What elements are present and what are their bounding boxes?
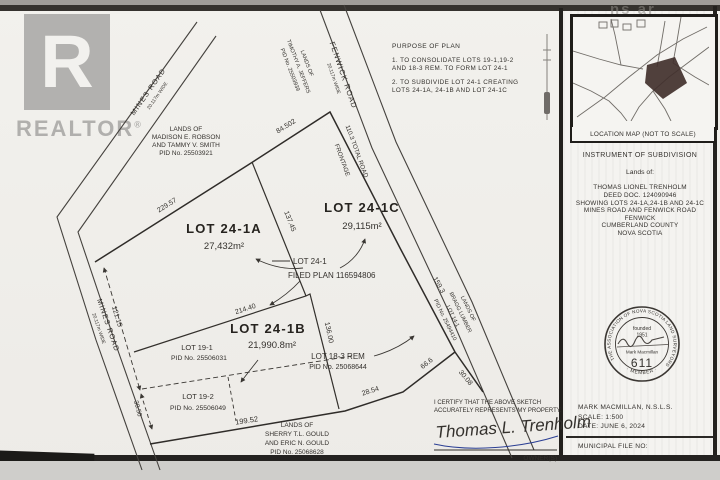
lands-jeffers-label: LANDS OF TIMOTHY A. JEFFERS PID No. 2550… — [277, 36, 320, 98]
interior-lot-lines — [134, 162, 339, 409]
dim-137-45: 137.45 — [282, 210, 296, 233]
lot-24-1-plan: FILED PLAN 116594806 — [288, 271, 376, 280]
robson-l2: MADISON E. ROBSON — [152, 134, 221, 141]
lot-24-1-name: LOT 24-1 — [293, 257, 327, 266]
gould-l4: PID No. 25068628 — [270, 449, 324, 456]
old-lot-line-2 — [228, 377, 236, 421]
lot-24-1b-name: LOT 24-1B — [230, 321, 306, 336]
certificate-line-1: I CERTIFY THAT THE ABOVE SKETCH — [434, 400, 541, 406]
dim-28-54: 28.54 — [361, 386, 380, 398]
nsar-watermark: ns ar — [610, 1, 656, 18]
gould-l1: LANDS OF — [281, 422, 314, 429]
dim-30-08: 30.08 — [457, 369, 474, 387]
lot-19-2-pid: PID No. 25506049 — [170, 405, 226, 412]
location-map — [570, 14, 718, 130]
robson-l1: LANDS OF — [170, 126, 203, 133]
survey-plan-sheet: R REALTOR® ns ar — [0, 0, 720, 480]
dim-30-50: 30.50 — [132, 400, 143, 418]
location-map-roads — [573, 17, 709, 121]
dim-84-502: 84.502 — [275, 118, 297, 135]
fenwick-road-label: FENWICK ROAD 20.117m WIDE — [319, 40, 359, 112]
lot-24-1c-area: 29,115m² — [342, 221, 381, 232]
gould-l2: SHERRY T.L. GOULD — [265, 431, 329, 438]
dim-159-3: 159.3 — [431, 276, 446, 295]
lot-19-1-name: LOT 19-1 — [181, 343, 213, 352]
purpose-line-2b: LOTS 24-1A, 24-1B AND LOT 24-1C — [392, 87, 507, 94]
owner-signature: Thomas L. Trenholm — [435, 412, 592, 442]
lands-bragg-label: LANDS OF BRAGG LUMBER LOT 14-1 PID No. 2… — [432, 287, 480, 341]
lot-labels: LOT 24-1A 27,432m² LOT 24-1C 29,115m² LO… — [170, 200, 400, 412]
mines-road-top-label: MINES ROAD 20.117m WIDE — [128, 66, 175, 122]
location-map-drawing — [573, 17, 709, 121]
dashed-lines — [104, 268, 352, 429]
robson-l4: PID No. 25503921 — [159, 150, 213, 157]
lot-24-1a-area: 27,432m² — [204, 241, 244, 252]
robson-l3: AND TAMMY V. SMITH — [152, 142, 220, 149]
location-map-caption: LOCATION MAP (NOT TO SCALE) — [570, 127, 716, 143]
owner-certificate: I CERTIFY THAT THE ABOVE SKETCH ACCURATE… — [434, 400, 591, 462]
purpose-line-2a: 2. TO SUBDIVIDE LOT 24-1 CREATING — [392, 79, 518, 86]
lot-24-1b-area: 21,990.8m² — [248, 340, 296, 351]
fold-mark-left-icon — [543, 34, 551, 120]
purpose-line-1b: AND 18-3 REM. TO FORM LOT 24-1 — [392, 65, 508, 72]
dim-214-40: 214.40 — [234, 303, 257, 316]
owner-label: OWNER(S) — [523, 455, 557, 462]
purpose-line-1a: 1. TO CONSOLIDATE LOTS 19-1,19-2 — [392, 57, 514, 64]
lot-18-3-name: LOT 18-3 REM — [311, 352, 365, 361]
lot-24-1a-name: LOT 24-1A — [186, 221, 262, 236]
lot-24-1c-name: LOT 24-1C — [324, 200, 400, 215]
lands-robson-label: LANDS OF MADISON E. ROBSON AND TAMMY V. … — [152, 126, 221, 157]
lands-gould-label: LANDS OF SHERRY T.L. GOULD AND ERIC N. G… — [265, 422, 330, 456]
lot-19-1-pid: PID No. 25506031 — [171, 355, 227, 362]
dim-136-00: 136.00 — [323, 321, 334, 344]
dim-199-52: 199.52 — [235, 414, 259, 426]
purpose-of-plan: PURPOSE OF PLAN 1. TO CONSOLIDATE LOTS 1… — [392, 43, 518, 94]
gould-l3: AND ERIC N. GOULD — [265, 440, 330, 447]
lot-19-2-name: LOT 19-2 — [182, 392, 214, 401]
certificate-line-2: ACCURATELY REPRESENTS MY PROPERTY. — [434, 408, 562, 414]
lot-18-3-pid: PID No. 25068644 — [309, 364, 367, 371]
purpose-title: PURPOSE OF PLAN — [392, 43, 460, 50]
